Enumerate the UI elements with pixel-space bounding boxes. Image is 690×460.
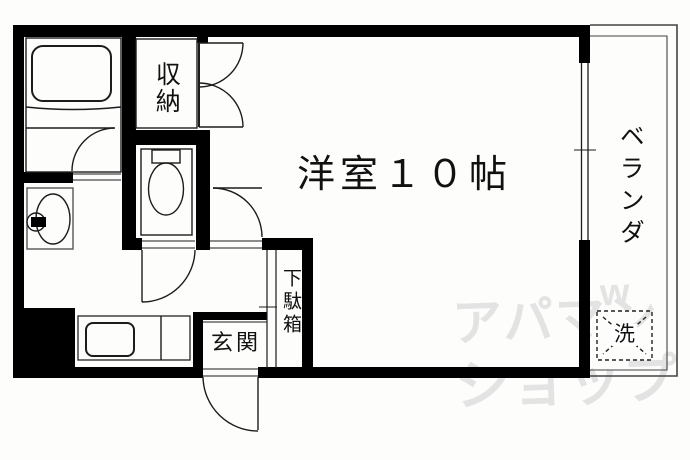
entrance-door-threshold <box>203 369 258 376</box>
floorplan: アパマン ショップ w <box>0 0 690 460</box>
label-washer: 洗 <box>612 324 637 346</box>
label-entrance: 玄関 <box>211 331 261 354</box>
closet-door-upper-arc <box>199 43 243 87</box>
toilet-door-arc <box>142 250 195 302</box>
entrance-door-arc <box>203 377 258 431</box>
bathroom-door-threshold <box>73 174 121 180</box>
main-room-door-threshold <box>210 241 262 248</box>
label-storage: 収納 <box>153 61 179 115</box>
linework-layer <box>0 0 690 460</box>
bathroom-outline <box>26 38 121 172</box>
bathtub-apron-line <box>26 107 121 110</box>
washbasin-faucet <box>31 217 46 227</box>
label-shoe-cabinet: 下駄箱 <box>280 268 300 337</box>
main-room-door-arc <box>213 188 262 237</box>
toilet-tank <box>152 150 180 163</box>
kitchen-sink <box>86 323 134 356</box>
toilet-bowl <box>149 163 184 215</box>
closet-door-lower-arc <box>199 83 243 127</box>
window-sliding-lines <box>582 63 589 240</box>
label-main-room: 洋室１０帖 <box>297 156 512 196</box>
bathtub <box>32 46 111 101</box>
shoe-cabinet-front-lines <box>267 250 276 368</box>
toilet-door-threshold <box>142 241 195 248</box>
bathroom-door-arc <box>72 128 115 171</box>
label-veranda: ベランダ <box>617 123 643 251</box>
